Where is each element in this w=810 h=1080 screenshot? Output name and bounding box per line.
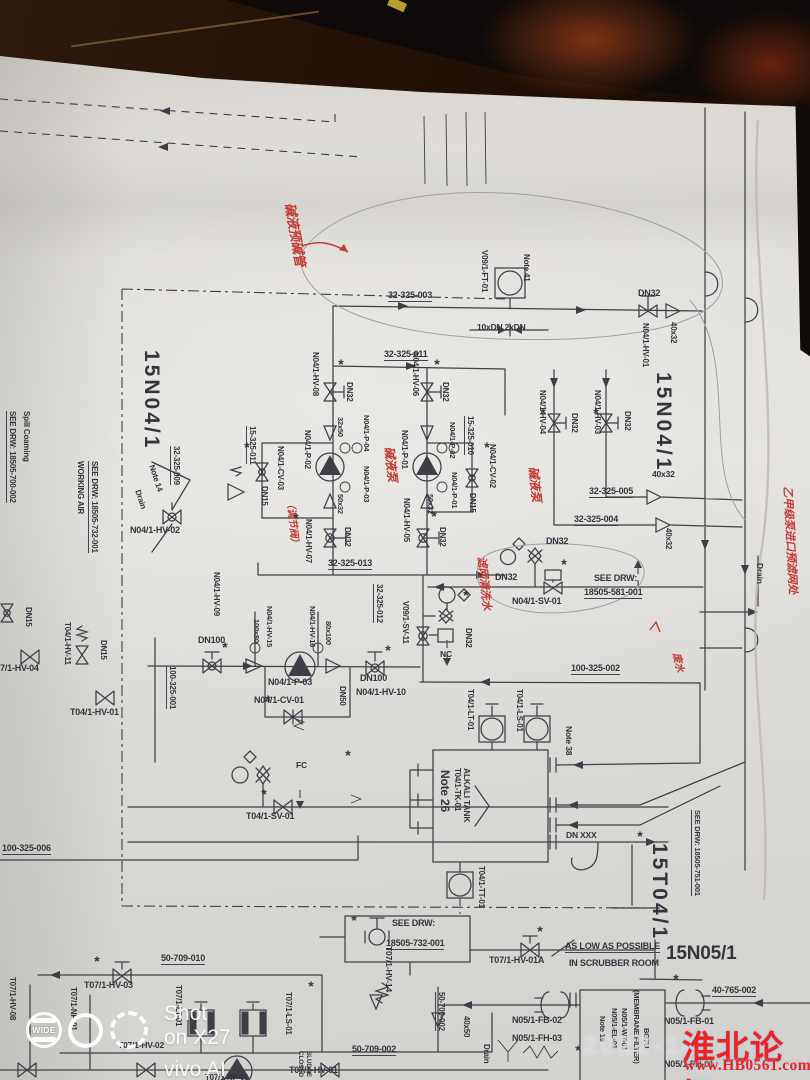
- diagram-label: T07/1-HV-01A: [489, 956, 544, 965]
- diagram-label: SEE DRW:: [594, 574, 637, 583]
- diagram-label: 32-325-011: [384, 350, 428, 361]
- diagram-label: T04/1-SV-01: [246, 812, 294, 821]
- diagram-label: T04/1-HV-11: [63, 622, 71, 665]
- diagram-label: N04/1-HV-07: [304, 519, 312, 563]
- diagram-label: T04/1-LS-01: [515, 689, 523, 732]
- diagram-label: DN32: [438, 527, 446, 547]
- diagram-label: N04/1-HV-16: [309, 606, 317, 647]
- diagram-label: DN15: [24, 607, 32, 627]
- handwritten-annotation: 碱液泵: [383, 446, 399, 482]
- diagram-label: DN32: [441, 382, 449, 402]
- dashed-boundary-lines: [0, 99, 660, 914]
- forum-url-watermark: www.HB0561.com: [684, 1057, 810, 1075]
- wide-lens-icon: WIDE: [26, 1012, 62, 1048]
- diagram-label: DN32: [623, 411, 631, 431]
- diagram-label: 7/1-HV-04: [0, 664, 39, 673]
- diagram-label: N04/1-HV-09: [212, 572, 220, 616]
- diagram-label: 32x50: [337, 417, 345, 437]
- diagram-label: N04/1-P-01: [400, 430, 408, 469]
- diagram-label: T07/1-HV-08: [8, 977, 16, 1020]
- diagram-label: 100-325-006: [2, 844, 51, 855]
- diagram-label: 18505-581-001: [584, 588, 642, 599]
- diagram-label: 15N04/1: [653, 372, 674, 472]
- diagram-label: 40-765-002: [712, 986, 756, 997]
- wide-badge-label: WIDE: [29, 1025, 59, 1035]
- diagram-label: DN100: [198, 636, 225, 645]
- diagram-label: 32-325-013: [328, 559, 372, 570]
- diagram-label: DN XXX: [566, 831, 596, 840]
- diagram-label: N04/1-HV-05: [402, 498, 410, 542]
- diagram-label: T07/1-HV-14: [385, 946, 394, 992]
- diagram-label: N04/1-P-04: [363, 415, 371, 451]
- diagram-label: N04/1-HV-01: [641, 323, 649, 367]
- valve-symbols: [1, 296, 657, 1077]
- lens-dashed-ring-icon: [110, 1011, 148, 1049]
- diagram-label: V09/1-FT-01: [480, 250, 488, 292]
- diagram-label: 40x32: [664, 528, 672, 549]
- photo-of-pid-drawing: 32-325-00332-325-01115N04/1N04/1-HV-08DN…: [0, 0, 810, 1080]
- diagram-label: DN50: [338, 686, 346, 706]
- diagram-label: 40x50: [462, 1016, 470, 1037]
- diagram-label: 10xDN 2xDN: [477, 323, 526, 332]
- diagram-label: NC: [440, 650, 452, 659]
- diagram-label: N04/1-P-03: [363, 466, 371, 502]
- diagram-label: SEE DRW: 18505-732-001: [88, 461, 98, 553]
- diagram-label: SEE DRW: 18505-700-002: [6, 411, 16, 503]
- diagram-label: AS LOW AS POSSIBLE: [565, 942, 660, 953]
- diagram-label: N04/1-P-01: [451, 472, 459, 508]
- diagram-label: T04/1-TT-01: [477, 866, 485, 908]
- diagram-label: 32-325-003: [388, 291, 432, 302]
- diagram-label: T04/1-TK-01: [453, 768, 461, 811]
- diagram-label: 80x100: [325, 621, 333, 645]
- diagram-label: 40x32: [652, 470, 675, 479]
- diagram-label: FC: [296, 761, 307, 770]
- diagram-label: T04/1-HV-01: [70, 708, 119, 717]
- diagram-label: DN32: [345, 382, 353, 402]
- diagram-label: Note 41: [522, 254, 530, 282]
- diagram-label: 32-325-004: [574, 515, 618, 526]
- diagram-label: N05/1-FB-02: [512, 1016, 562, 1025]
- diagram-label: DN32: [343, 527, 351, 547]
- diagram-label: SLUDGE: [305, 1051, 312, 1077]
- pencil-annotations: [300, 120, 768, 900]
- diagram-label: N05/1-FH-03: [512, 1034, 562, 1043]
- diagram-label: SEE DRW:: [392, 919, 435, 928]
- diagram-label: DN32: [495, 573, 517, 582]
- diagram-label: 32-325-005: [589, 487, 633, 498]
- diagram-label: Spill Coaming: [22, 411, 30, 462]
- diagram-label: N04/1-SV-01: [512, 597, 561, 606]
- diagram-label: DN32: [464, 628, 472, 648]
- diagram-label: DN32: [546, 537, 568, 546]
- diagram-label: 15N04/1: [141, 350, 162, 450]
- diagram-label: 50x32: [337, 494, 345, 514]
- diagram-label: N04/1-HV-15: [266, 606, 274, 647]
- diagram-label: N04/1-P-03: [268, 678, 312, 687]
- diagram-label: Drain: [756, 563, 765, 584]
- diagram-label: 32-325-012: [373, 584, 383, 623]
- diagram-label: DN32: [570, 413, 578, 433]
- diagram-label: ALKALI TANK: [463, 768, 472, 822]
- diagram-label: 15T04/1: [649, 843, 670, 941]
- diagram-label: 100-325-002: [571, 664, 620, 675]
- diagram-label: N04/1-HV-06: [411, 352, 419, 396]
- diagram-label: CLOSED: [297, 1051, 304, 1077]
- diagram-label: N04/1-CV-03: [276, 446, 284, 490]
- handwritten-annotation: 碱液泵: [527, 466, 543, 502]
- diagram-label: V09/1-SV-11: [401, 601, 409, 644]
- diagram-label: 100x80: [253, 619, 261, 643]
- diagram-label: 15N05/1: [666, 944, 736, 963]
- lens-ring-icon: [68, 1013, 103, 1048]
- diagram-label: 100-325-001: [166, 666, 176, 709]
- diagram-label: 32-325-009: [170, 446, 180, 485]
- diagram-label: DN15: [260, 486, 268, 506]
- diagram-label: SEE DRW: 18505-751-001: [692, 810, 702, 896]
- diagram-label: Note 26: [439, 770, 451, 812]
- diagram-label: 18505-732-001: [386, 939, 444, 950]
- diagram-label: T07/1-LS-01: [284, 992, 292, 1035]
- diagram-label: DN100: [360, 674, 387, 683]
- diagram-label: 15-325-010: [464, 416, 474, 455]
- diagram-label: DN32: [638, 289, 660, 298]
- camera-name-text: vivo AI camera: [164, 1058, 234, 1080]
- diagram-label: N04/1-HV-02: [130, 526, 180, 535]
- shot-on-text: Shot on X27: [164, 1002, 234, 1050]
- pipe-lines: [0, 108, 810, 1080]
- diagram-label: Note 38: [565, 726, 574, 755]
- diagram-label: WORKING AIR: [76, 461, 84, 514]
- diagram-label: N04/1-P-02: [303, 430, 311, 469]
- diagram-label: 50-709-010: [161, 954, 205, 965]
- diagram-label: N04/1-P-02: [449, 422, 457, 458]
- diagram-label: IN SCRUBBER ROOM: [569, 959, 659, 968]
- diagram-label: T07/1-HV-03: [84, 981, 133, 990]
- diagram-label: N04/1-HV-08: [311, 352, 319, 396]
- diagram-label: Drain: [482, 1044, 490, 1063]
- diagram-label: DN15: [468, 493, 476, 513]
- diagram-label: DN15: [99, 640, 107, 660]
- diagram-label: 50-709-002: [352, 1045, 396, 1056]
- diagram-label: 50-709-002: [435, 992, 445, 1031]
- diagram-label: N04/1-HV-10: [356, 688, 406, 697]
- diagram-label: N04/1-CV-01: [254, 696, 304, 705]
- diagram-label: T04/1-LT-01: [466, 689, 474, 730]
- diagram-label: 40x32: [669, 322, 677, 343]
